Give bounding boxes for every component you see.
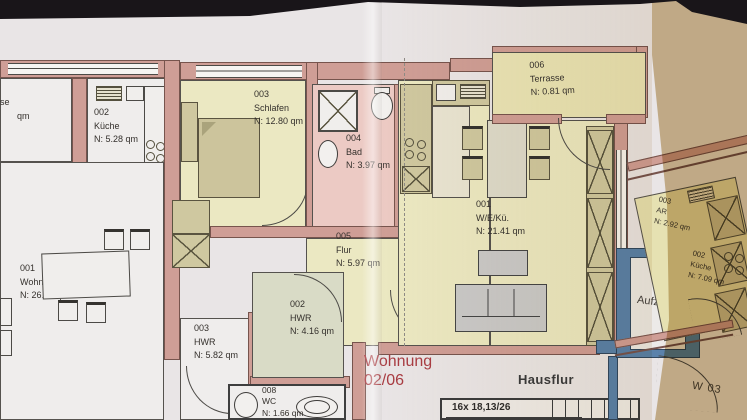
shower-icon <box>318 90 358 132</box>
appliance-icon <box>126 86 144 101</box>
stair-step <box>591 399 592 419</box>
room-name: Bad <box>346 146 390 160</box>
partial-room-label: se qm <box>0 96 30 123</box>
wall <box>450 58 494 72</box>
stair-step <box>565 399 566 419</box>
paper-sheet: se qm 002 Küche N: 5.28 qm 001 Wohnen/Es… <box>0 0 747 420</box>
adjacent-unit-area: 003 AR N: 2.92 qm 002 Küche N: 7.09 qm W… <box>596 0 747 420</box>
room-label-bad: 004 Bad N: 3.97 qm <box>346 132 390 173</box>
room-number: 001 <box>476 198 525 212</box>
room-label-kueche-left: 002 Küche N: 5.28 qm <box>94 106 138 147</box>
room-area: N: 5.82 qm <box>194 349 238 363</box>
washbasin-icon <box>318 140 338 168</box>
burner-icon <box>417 140 426 149</box>
hausflur-label: Hausflur <box>518 372 574 387</box>
vent-hood-icon <box>96 86 122 101</box>
sideboard-icon <box>478 250 528 276</box>
chair-icon <box>529 156 550 180</box>
stair-step <box>552 399 553 419</box>
room-name: Flur <box>336 244 380 258</box>
shelf-icon <box>0 298 12 326</box>
closet-icon <box>172 200 210 234</box>
counter-top <box>432 106 470 198</box>
room-name: WC <box>262 396 304 407</box>
dining-table <box>487 120 527 198</box>
window <box>196 65 302 78</box>
toilet-icon <box>371 92 393 120</box>
wardrobe-icon <box>172 234 210 268</box>
room-number: 004 <box>346 132 390 146</box>
appliance-icon <box>436 84 456 101</box>
room-label-schlafen: 003 Schlafen N: 12.80 qm <box>254 88 303 129</box>
room-name: HWR <box>194 336 238 350</box>
burner-icon <box>405 138 414 147</box>
burner-icon <box>146 140 155 149</box>
chair-icon <box>58 300 78 321</box>
room-number: 008 <box>262 385 304 396</box>
room-label-flur: 005 Flur N: 5.97 qm <box>336 230 380 271</box>
room-area: N: 0.81 qm <box>530 84 575 100</box>
toilet-bowl-icon <box>304 400 330 414</box>
burner-icon <box>417 152 426 161</box>
chair-icon <box>462 156 483 180</box>
dining-table <box>41 250 131 299</box>
unit-title: Wohnung 02/06 <box>364 352 432 390</box>
bedside-icon <box>181 102 198 162</box>
room-area: N: 5.97 qm <box>336 257 380 271</box>
partial-label-line2: qm <box>0 110 30 124</box>
fold-dashed-line <box>404 58 405 346</box>
room-area: N: 21.41 qm <box>476 225 525 239</box>
cabinet-icon <box>402 166 430 192</box>
chair-icon <box>104 229 124 250</box>
room-number: 003 <box>194 322 238 336</box>
partial-label-line1: se <box>0 96 30 110</box>
stairs-underline <box>446 417 582 418</box>
chair-icon <box>529 126 550 150</box>
room-number: 003 <box>254 88 303 102</box>
room-area: N: 4.16 qm <box>290 325 334 339</box>
chair-icon <box>86 302 106 323</box>
room-area: N: 1.66 qm <box>262 408 304 419</box>
vent-hood-icon <box>460 84 486 99</box>
stairs-note: 16x 18,13/26 <box>452 402 510 413</box>
room-label-hwr-left: 003 HWR N: 5.82 qm <box>194 322 238 363</box>
window <box>8 63 158 75</box>
room-label-terrasse: 006 Terrasse N: 0.81 qm <box>529 57 575 100</box>
room-name: W/E/Kü. <box>476 212 525 226</box>
burner-icon <box>735 254 744 263</box>
room-number: 002 <box>94 106 138 120</box>
washbasin-icon <box>234 392 258 418</box>
floor-plan-photo: se qm 002 Küche N: 5.28 qm 001 Wohnen/Es… <box>0 0 747 420</box>
sofa-icon <box>455 284 547 332</box>
room-label-wc: 008 WC N: 1.66 qm <box>262 385 304 419</box>
room-area: N: 3.97 qm <box>346 159 390 173</box>
room-area: N: 5.28 qm <box>94 133 138 147</box>
wall <box>492 114 562 124</box>
burner-icon <box>146 152 155 161</box>
room-name: Küche <box>94 120 138 134</box>
burner-icon <box>405 150 414 159</box>
chair-icon <box>462 126 483 150</box>
room-name: Schlafen <box>254 102 303 116</box>
room-label-weku: 001 W/E/Kü. N: 21.41 qm <box>476 198 525 239</box>
sofa-cushions <box>462 289 540 317</box>
room-number: 005 <box>336 230 380 244</box>
shelf-icon <box>0 330 12 356</box>
burner-icon <box>735 266 744 275</box>
stair-step <box>578 399 579 419</box>
unit-title-line1: Wohnung <box>364 352 432 371</box>
chair-icon <box>130 229 150 250</box>
room-area: N: 12.80 qm <box>254 115 303 129</box>
unit-title-line2: 02/06 <box>364 371 432 390</box>
